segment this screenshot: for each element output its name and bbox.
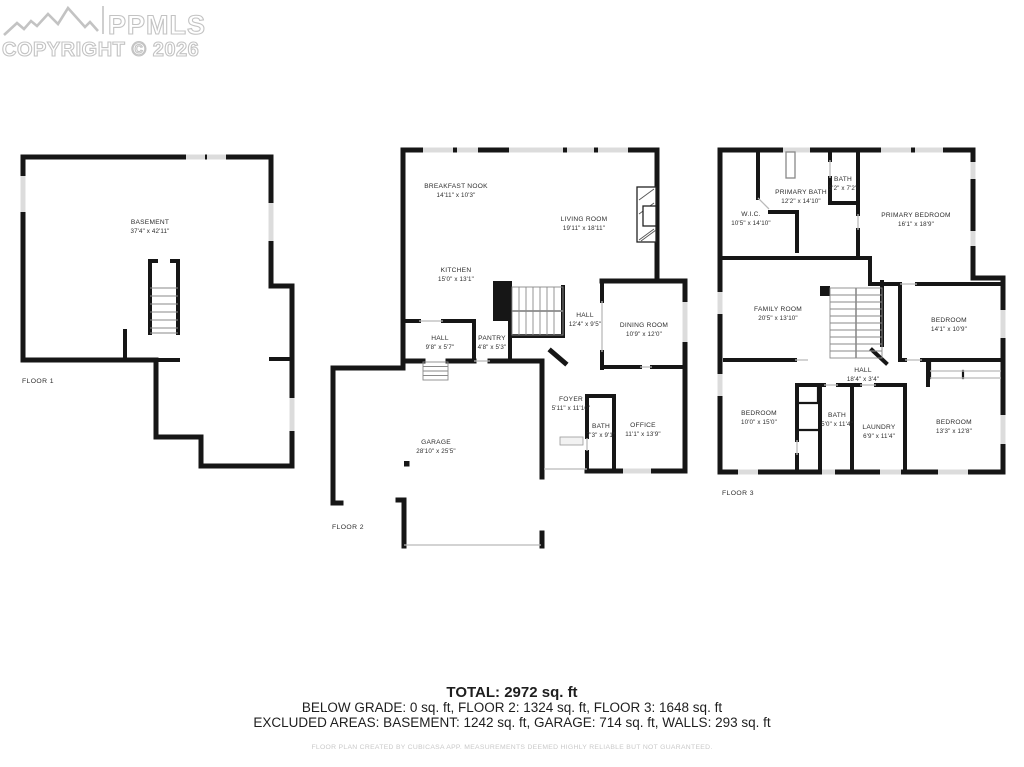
chimney-block — [493, 281, 512, 321]
room-dims-breakfast-nook: 14'11" x 10'3" — [436, 192, 475, 199]
watermark-brand: PPMLS — [108, 10, 206, 40]
room-label-foyer: FOYER — [559, 396, 583, 403]
room-label-kitchen: KITCHEN — [441, 267, 472, 274]
bath-vanity — [560, 437, 583, 445]
room-dims-bath-f3: 5'0" x 11'4" — [821, 421, 853, 428]
room-label-hall-small: HALL — [431, 335, 449, 342]
room-label-dining-room: DINING ROOM — [620, 322, 668, 329]
room-label-breakfast-nook: BREAKFAST NOOK — [424, 183, 488, 190]
floors-area-text: BELOW GRADE: 0 sq. ft, FLOOR 2: 1324 sq.… — [0, 700, 1024, 715]
area-summary: TOTAL: 2972 sq. ft BELOW GRADE: 0 sq. ft… — [0, 685, 1024, 751]
floor3-stairs — [830, 288, 882, 358]
room-dims-foyer: 5'11" x 11'10" — [552, 405, 591, 412]
room-dims-kitchen: 15'0" x 13'1" — [438, 276, 474, 283]
floor2-label: FLOOR 2 — [332, 524, 364, 531]
garage-post — [404, 461, 410, 467]
disclaimer-text: FLOOR PLAN CREATED BY CUBICASA APP. MEAS… — [0, 744, 1024, 751]
room-dims-garage: 28'10" x 25'5" — [416, 448, 455, 455]
floor-2-plan: BREAKFAST NOOK 14'11" x 10'3" LIVING ROO… — [332, 150, 685, 546]
room-label-bedroom-right: BEDROOM — [936, 419, 972, 426]
room-label-bath-f3: BATH — [828, 412, 846, 419]
room-label-primary-bedroom: PRIMARY BEDROOM — [881, 212, 950, 219]
floor1-interior-walls — [125, 261, 292, 360]
room-label-bedroom-left: BEDROOM — [741, 410, 777, 417]
room-label-garage: GARAGE — [421, 439, 451, 446]
floor-3-plan: W.I.C. 10'5" x 14'10" PRIMARY BATH 12'2"… — [720, 150, 1003, 497]
room-label-pantry: PANTRY — [478, 335, 506, 342]
room-label-laundry: LAUNDRY — [862, 424, 895, 431]
room-dims-bedroom-right: 13'3" x 12'8" — [936, 428, 972, 435]
room-label-hall-f3: HALL — [854, 367, 872, 374]
watermark: PPMLS COPYRIGHT © 2026 — [2, 6, 206, 61]
watermark-copyright: COPYRIGHT © 2026 — [2, 39, 199, 61]
room-dims-primary-bedroom: 16'1" x 18'9" — [898, 221, 934, 228]
room-dims-living-room: 19'11" x 18'11" — [563, 225, 605, 232]
room-dims-hall-small: 9'8" x 5'7" — [426, 344, 455, 351]
room-label-bath-f2: BATH — [592, 423, 610, 430]
total-area-text: TOTAL: 2972 sq. ft — [0, 685, 1024, 700]
room-dims-family-room: 20'5" x 13'10" — [758, 315, 797, 322]
floor1-label: FLOOR 1 — [22, 378, 54, 385]
room-dims-laundry: 6'9" x 11'4" — [863, 433, 895, 440]
floor-1-plan: BASEMENT 37'4" x 42'11" FLOOR 1 — [22, 157, 292, 466]
room-label-wic: W.I.C. — [741, 211, 760, 218]
room-label-bedroom-mid: BEDROOM — [931, 317, 967, 324]
room-label-basement: BASEMENT — [131, 219, 169, 226]
fireplace — [637, 187, 656, 242]
room-label-living-room: LIVING ROOM — [561, 216, 608, 223]
floor3-solids — [820, 286, 830, 296]
room-dims-primary-bath: 12'2" x 14'10" — [781, 198, 820, 205]
mountain-logo-icon — [4, 8, 98, 35]
stair-newel-block — [820, 286, 830, 296]
room-label-bath-small: BATH — [834, 176, 852, 183]
floor-plan-sheet: PPMLS COPYRIGHT © 2026 BASEMENT 37'4" x … — [0, 0, 1024, 767]
room-dims-dining-room: 10'9" x 12'0" — [626, 331, 662, 338]
room-dims-wic: 10'5" x 14'10" — [731, 220, 770, 227]
room-label-office: OFFICE — [630, 422, 656, 429]
room-label-hall-main: HALL — [576, 312, 594, 319]
room-label-family-room: FAMILY ROOM — [754, 306, 802, 313]
excluded-area-text: EXCLUDED AREAS: BASEMENT: 1242 sq. ft, G… — [0, 715, 1024, 730]
room-dims-bedroom-left: 10'0" x 15'0" — [741, 419, 777, 426]
room-label-primary-bath: PRIMARY BATH — [775, 189, 827, 196]
floor1-exterior-walls — [23, 157, 292, 466]
room-dims-bath-small: 3'2" x 7'2" — [829, 185, 858, 192]
room-dims-hall-f3: 18'4" x 3'4" — [847, 376, 879, 383]
room-dims-bedroom-mid: 14'1" x 10'9" — [931, 326, 967, 333]
floor3-label: FLOOR 3 — [722, 490, 754, 497]
room-dims-hall-main: 12'4" x 9'5" — [569, 321, 601, 328]
room-dims-basement: 37'4" x 42'11" — [130, 228, 169, 235]
room-dims-bath-f2: 7'3" x 9'1" — [587, 432, 616, 439]
floor1-stairs — [150, 288, 178, 333]
room-dims-office: 11'1" x 13'9" — [625, 431, 660, 438]
room-dims-pantry: 4'8" x 5'3" — [478, 344, 507, 351]
